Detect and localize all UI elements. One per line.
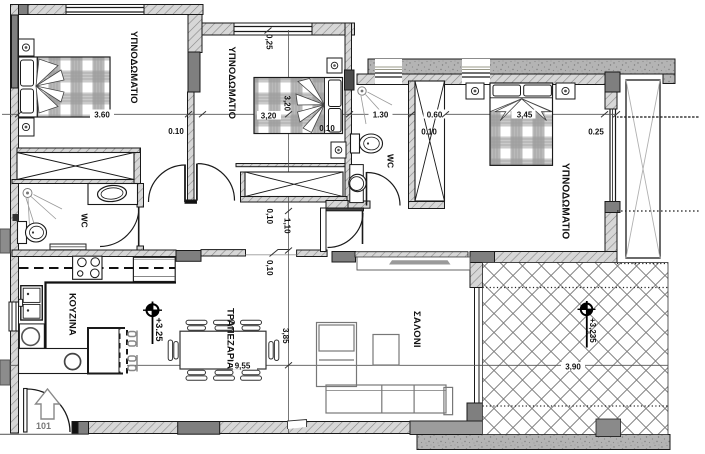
svg-text:3,20: 3,20: [283, 96, 292, 112]
svg-text:101: 101: [36, 421, 51, 431]
svg-text:ΥΠΝΟΔΩΜΑΤΙΟ: ΥΠΝΟΔΩΜΑΤΙΟ: [128, 31, 139, 104]
svg-text:3,85: 3,85: [281, 328, 290, 344]
svg-text:0,25: 0,25: [265, 34, 274, 50]
svg-text:3,45: 3,45: [517, 110, 533, 119]
svg-text:WC: WC: [80, 214, 90, 228]
svg-text:0.10: 0.10: [421, 128, 437, 137]
svg-text:ΥΠΝΟΔΩΜΑΤΙΟ: ΥΠΝΟΔΩΜΑΤΙΟ: [560, 163, 571, 239]
svg-text:1.30: 1.30: [373, 110, 389, 119]
svg-text:ΥΠΝΟΔΩΜΑΤΙΟ: ΥΠΝΟΔΩΜΑΤΙΟ: [226, 47, 237, 120]
svg-text:ΚΟΥΖΙΝΑ: ΚΟΥΖΙΝΑ: [67, 293, 78, 336]
svg-text:+3.25: +3.25: [153, 318, 164, 343]
svg-text:WC: WC: [386, 154, 396, 168]
svg-text:0.60: 0.60: [427, 110, 443, 119]
svg-text:0,10: 0,10: [319, 124, 335, 133]
svg-text:ΣΑΛΟΝΙ: ΣΑΛΟΝΙ: [411, 311, 422, 348]
svg-text:3.60: 3.60: [94, 110, 110, 119]
svg-text:1,10: 1,10: [283, 218, 292, 234]
svg-text:0.10: 0.10: [168, 127, 184, 136]
svg-text:0.25: 0.25: [588, 128, 604, 137]
svg-text:0,10: 0,10: [265, 209, 274, 225]
svg-text:0,10: 0,10: [265, 260, 274, 276]
svg-text:3,20: 3,20: [261, 112, 277, 121]
svg-text:+3,235: +3,235: [588, 318, 597, 343]
svg-text:3,90: 3,90: [565, 363, 581, 372]
svg-text:9,55: 9,55: [235, 361, 251, 370]
svg-text:ΤΡΑΠΕΖΑΡΙΑ: ΤΡΑΠΕΖΑΡΙΑ: [225, 308, 236, 369]
